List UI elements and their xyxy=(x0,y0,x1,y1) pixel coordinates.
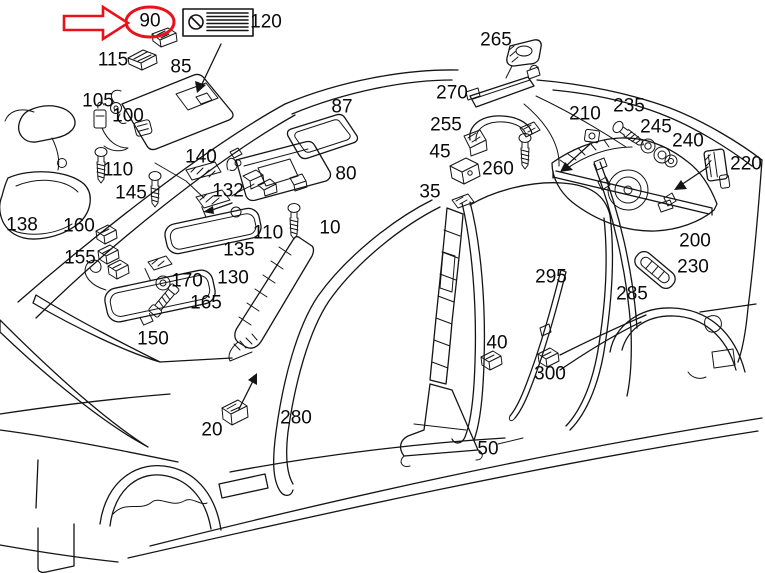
part-label-170: 170 xyxy=(171,272,203,291)
part-label-300: 300 xyxy=(534,365,566,384)
part-label-200: 200 xyxy=(679,232,711,251)
part-label-155: 155 xyxy=(64,249,96,268)
part-label-295: 295 xyxy=(535,268,567,287)
part-label-85: 85 xyxy=(170,58,191,77)
part-label-260: 260 xyxy=(482,160,514,179)
part-label-45: 45 xyxy=(429,143,450,162)
part-label-100: 100 xyxy=(112,107,144,126)
part-label-135: 135 xyxy=(223,241,255,260)
part-label-10: 10 xyxy=(319,219,340,238)
part-label-255: 255 xyxy=(430,116,462,135)
part-label-140: 140 xyxy=(185,148,217,167)
part-label-50: 50 xyxy=(477,440,498,459)
part-label-90: 90 xyxy=(139,12,160,31)
part-label-105: 105 xyxy=(82,92,114,111)
part-label-132: 132 xyxy=(212,182,244,201)
part-label-110-rear: 110 xyxy=(253,224,283,243)
part-label-265: 265 xyxy=(480,31,512,50)
part-label-130: 130 xyxy=(217,269,249,288)
part-labels-layer: 9012011585105100110140145132110135138160… xyxy=(0,0,765,573)
part-label-160: 160 xyxy=(63,217,95,236)
part-label-230: 230 xyxy=(677,258,709,277)
part-label-145: 145 xyxy=(115,184,147,203)
part-label-280: 280 xyxy=(280,409,312,428)
part-label-220: 220 xyxy=(730,155,762,174)
part-label-120: 120 xyxy=(250,13,282,32)
part-label-115: 115 xyxy=(98,51,128,70)
part-label-150: 150 xyxy=(137,330,169,349)
part-label-110-front: 110 xyxy=(103,161,133,180)
part-label-245: 245 xyxy=(640,118,672,137)
part-label-235: 235 xyxy=(613,97,645,116)
part-label-87: 87 xyxy=(331,98,352,117)
part-label-285: 285 xyxy=(616,285,648,304)
part-label-35: 35 xyxy=(419,183,440,202)
part-label-240: 240 xyxy=(672,132,704,151)
part-label-138: 138 xyxy=(6,216,38,235)
part-label-20: 20 xyxy=(201,421,222,440)
part-label-40: 40 xyxy=(486,334,507,353)
part-label-270: 270 xyxy=(436,84,468,103)
part-label-210: 210 xyxy=(569,105,601,124)
part-label-165: 165 xyxy=(190,294,222,313)
parts-diagram: 9012011585105100110140145132110135138160… xyxy=(0,0,765,573)
part-label-80: 80 xyxy=(335,165,356,184)
